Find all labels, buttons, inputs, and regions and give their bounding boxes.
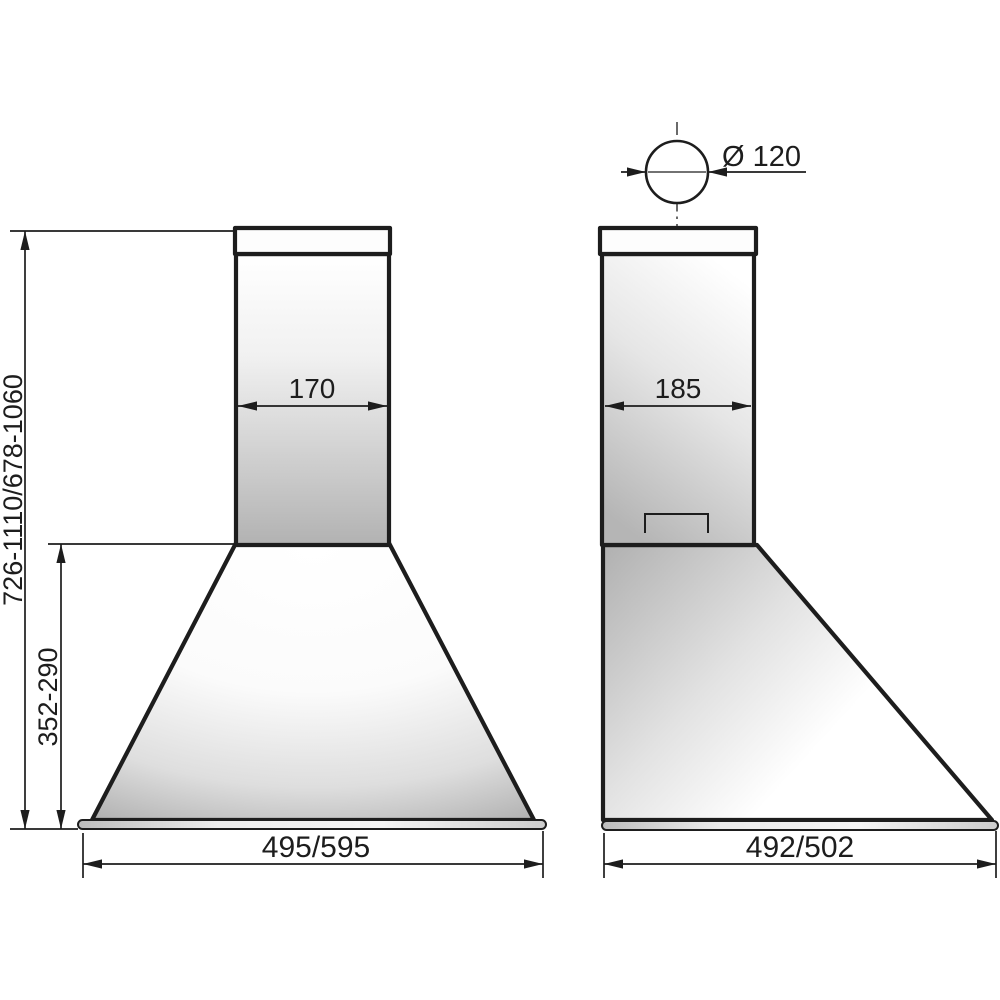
side-view: Ø 120 185 492/502 [600,122,998,878]
front-base-width-label: 495/595 [262,831,370,864]
front-chimney-width-label: 170 [289,373,336,404]
hood-dimension-drawing: 170 726-1110/678-1060 352-290 495/595 [0,0,1000,1000]
side-base-depth-arrow-left [604,859,623,868]
front-canopy-height-arrow-top [56,544,65,563]
side-base-depth-arrow-right [977,859,996,868]
dimension-drawing-page: 170 726-1110/678-1060 352-290 495/595 [0,0,1000,1000]
duct-diameter-label: Ø 120 [722,141,801,173]
front-overall-height-label: 726-1110/678-1060 [0,374,28,606]
front-overall-height-arrow-bottom [20,810,29,829]
front-canopy-cone [92,543,534,820]
front-view: 170 726-1110/678-1060 352-290 495/595 [0,228,546,878]
front-base-width-arrow-left [83,859,102,868]
front-canopy-height-label: 352-290 [33,647,63,746]
side-canopy-cone [603,545,992,820]
side-chimney-cap [600,228,756,254]
duct-diameter-arrow-left [627,167,646,176]
side-base-depth-label: 492/502 [746,831,854,864]
front-chimney-cap [235,228,390,254]
side-base-rim [602,821,998,830]
side-chimney-depth-label: 185 [655,373,702,404]
front-base-rim [78,820,546,829]
front-canopy-height-arrow-bottom [56,810,65,829]
front-base-width-arrow-right [524,859,543,868]
front-overall-height-arrow-top [20,231,29,250]
